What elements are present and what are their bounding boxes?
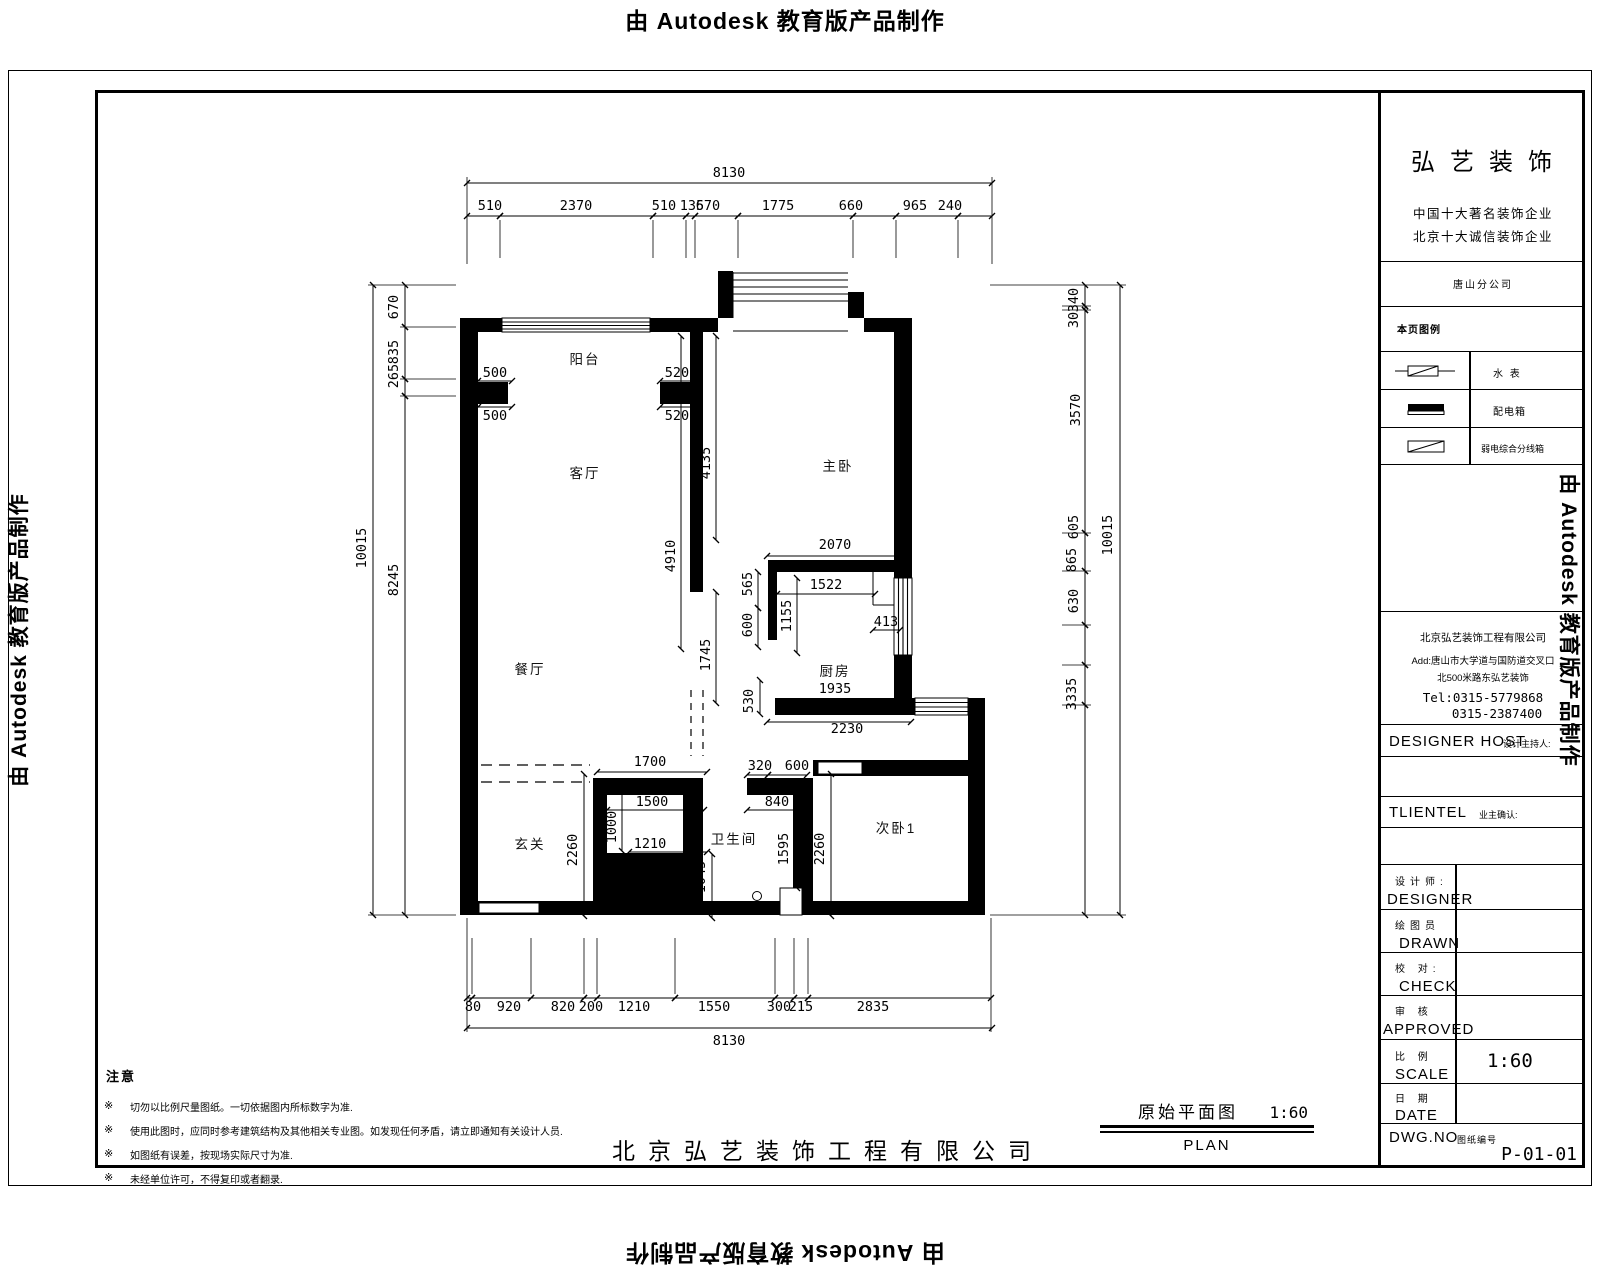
company-address: Add:唐山市大学道与国防道交叉口: [1381, 653, 1585, 667]
dim-label: 1775: [762, 198, 795, 214]
company-slogan: 中国十大著名装饰企业: [1381, 203, 1585, 222]
legend-divider: [1469, 352, 1471, 465]
dim-label: 265: [386, 364, 402, 388]
footer-company: 北京弘艺装饰工程有限公司: [612, 1132, 1044, 1166]
dim-label: 965: [903, 198, 927, 214]
dim-label: 240: [938, 198, 962, 214]
dim-label: 30: [1066, 312, 1082, 328]
dim-label: 413: [874, 614, 898, 630]
dim-label: 670: [696, 198, 720, 214]
dwg-no-row: DWG.NO 图纸编号 P-01-01: [1381, 1124, 1585, 1165]
dim-label: 630: [1066, 589, 1082, 613]
empty-cell: [1381, 757, 1585, 797]
legend-row: 水 表: [1381, 352, 1585, 390]
branch-cell: 唐山分公司: [1381, 262, 1585, 307]
room-label-balcony: 阳台: [570, 352, 601, 367]
room-label-bedroom2: 次卧1: [876, 821, 917, 836]
clientele-row: TLIENTEL 业主确认:: [1381, 797, 1585, 828]
dim-label: 1595: [776, 833, 792, 866]
drawing-title: 原始平面图 1:60 PLAN: [1100, 1098, 1314, 1154]
drawing-sheet: 由 Autodesk 教育版产品制作 由 Autodesk 教育版产品制作 由 …: [0, 0, 1600, 1280]
room-label-master: 主卧: [823, 459, 854, 474]
drawn-row: 绘图员 DRAWN: [1381, 910, 1585, 953]
pipe-shaft: [607, 853, 683, 915]
legend-title-cell: 本页图例: [1381, 307, 1585, 352]
dim-label: 600: [740, 613, 756, 637]
note-text: 使用此图时，应同时参考建筑结构及其他相关专业图。如发现任何矛盾，请立即通知有关设…: [130, 1123, 563, 1138]
dim-label: 3335: [1064, 678, 1080, 711]
room-label-kitchen: 厨房: [820, 664, 851, 679]
dim-label: 1210: [618, 999, 651, 1015]
dim-label: 340: [1066, 288, 1082, 312]
row-label-en: DRAWN: [1399, 935, 1585, 952]
scale-row: 比 例 SCALE 1:60: [1381, 1040, 1585, 1084]
notes-block: 注意 ※ 切勿以比例尺量图纸。一切依据图内所标数字为准. ※ 使用此图时，应同时…: [104, 1066, 584, 1195]
clientele-en: TLIENTEL: [1389, 804, 1467, 821]
company-address: 北500米路东弘艺装饰: [1381, 670, 1585, 684]
note-text: 未经单位许可，不得复印或者翻录.: [130, 1171, 283, 1186]
dim-label: 1700: [634, 754, 667, 770]
company-name: 北京弘艺装饰工程有限公司: [1381, 630, 1585, 645]
dim-label: 510: [478, 198, 502, 214]
room-label-living: 客厅: [570, 465, 601, 481]
legend-label: 配电箱: [1493, 403, 1526, 418]
dim-label: 2835: [857, 999, 890, 1015]
dim-label: 820: [551, 999, 575, 1015]
dim-label: 1045: [693, 861, 709, 894]
legend-row: 配电箱: [1381, 390, 1585, 428]
dim-label: 8130: [713, 165, 746, 181]
legend-row: 弱电综合分线箱: [1381, 428, 1585, 465]
dim-label: 1745: [698, 639, 714, 672]
empty-cell: [1381, 465, 1585, 612]
weak-current-box-icon: [1407, 440, 1447, 459]
dim-label: 565: [740, 572, 756, 596]
dim-label: 2370: [560, 198, 593, 214]
pier-left: [478, 382, 508, 404]
dim-label: 920: [497, 999, 521, 1015]
row-label-en: DESIGNER: [1387, 891, 1585, 908]
note-bullet: ※: [104, 1099, 130, 1114]
dwg-no-label: DWG.NO: [1389, 1129, 1458, 1146]
dim-label: 2260: [812, 833, 828, 866]
designer-host-zh: 设计主持人:: [1503, 737, 1551, 750]
row-label-zh: 校 对:: [1395, 960, 1585, 975]
dim-label: 215: [789, 999, 813, 1015]
clientele-zh: 业主确认:: [1479, 808, 1518, 821]
company-tel: Tel:0315-5779868: [1381, 690, 1585, 705]
note-item: ※ 使用此图时，应同时参考建筑结构及其他相关专业图。如发现任何矛盾，请立即通知有…: [104, 1123, 584, 1138]
dim-label: 300: [767, 999, 791, 1015]
dim-label: 500: [483, 408, 507, 424]
dim-label: 10015: [354, 528, 370, 569]
pier-right: [660, 382, 690, 404]
designer-host-row: DESIGNER HOST 设计主持人:: [1381, 725, 1585, 757]
room-labels-group: 阳台 客厅 餐厅 主卧 厨房 玄关 卫生间 次卧1: [515, 352, 917, 852]
room-label-entry: 玄关: [515, 836, 546, 852]
dim-label: 1522: [810, 577, 843, 593]
title-underline: [1100, 1131, 1314, 1133]
dim-label: 320: [748, 758, 772, 774]
dim-label: 660: [839, 198, 863, 214]
door-opening: [818, 762, 862, 774]
dim-label: 2260: [565, 834, 581, 867]
row-label-en: APPROVED: [1383, 1021, 1585, 1038]
dim-label: 510: [652, 198, 676, 214]
row-label-en: DATE: [1395, 1107, 1585, 1124]
dim-label: 865: [1064, 548, 1080, 572]
dim-label: 10015: [1100, 515, 1116, 556]
notes-title: 注意: [106, 1066, 584, 1085]
note-text: 切勿以比例尺量图纸。一切依据图内所标数字为准.: [130, 1099, 353, 1114]
floor-drain: [753, 892, 762, 901]
company-tel: 0315-2387400: [1409, 706, 1585, 721]
drawing-scale: 1:60: [1269, 1103, 1308, 1122]
dim-label: 8130: [713, 1033, 746, 1049]
title-underline: [1100, 1125, 1314, 1128]
note-text: 如图纸有误差，按现场实际尺寸为准.: [130, 1147, 293, 1162]
company-slogan: 北京十大诚信装饰企业: [1381, 226, 1585, 245]
row-label-zh: 设计师:: [1395, 873, 1585, 888]
note-bullet: ※: [104, 1171, 130, 1186]
dim-label: 1000: [604, 811, 620, 844]
approved-row: 审 核 APPROVED: [1381, 996, 1585, 1040]
note-item: ※ 如图纸有误差，按现场实际尺寸为准.: [104, 1147, 584, 1162]
row-label-zh: 绘图员: [1395, 917, 1585, 932]
company-logo: 弘艺装饰: [1381, 142, 1585, 177]
dim-label: 200: [579, 999, 603, 1015]
distribution-box-icon: [1407, 403, 1447, 421]
legend-label: 弱电综合分线箱: [1481, 442, 1544, 455]
note-item: ※ 未经单位许可，不得复印或者翻录.: [104, 1171, 584, 1186]
company-info-cell: 北京弘艺装饰工程有限公司 Add:唐山市大学道与国防道交叉口 北500米路东弘艺…: [1381, 612, 1585, 725]
rows-divider: [1455, 865, 1457, 1124]
dim-label: 1155: [779, 600, 795, 633]
note-bullet: ※: [104, 1123, 130, 1138]
title-block: 弘艺装饰 中国十大著名装饰企业 北京十大诚信装饰企业 唐山分公司 本页图例 水 …: [1378, 90, 1585, 1165]
check-row: 校 对: CHECK: [1381, 953, 1585, 996]
dim-label: 4135: [698, 447, 714, 480]
basin-fixture: [780, 888, 802, 915]
row-label-zh: 审 核: [1395, 1003, 1585, 1018]
legend-label: 水 表: [1493, 365, 1522, 380]
dim-label: 4910: [663, 540, 679, 573]
title-block-logo-cell: 弘艺装饰 中国十大著名装饰企业 北京十大诚信装饰企业: [1381, 90, 1585, 262]
legend-title: 本页图例: [1397, 321, 1441, 336]
dim-label: 2230: [831, 721, 864, 737]
branch-name: 唐山分公司: [1453, 276, 1513, 291]
dim-label: 1210: [634, 836, 667, 852]
dim-label: 1935: [819, 681, 852, 697]
door-opening: [479, 903, 539, 913]
note-item: ※ 切勿以比例尺量图纸。一切依据图内所标数字为准.: [104, 1099, 584, 1114]
drawing-title-en: PLAN: [1100, 1137, 1314, 1154]
room-label-bath: 卫生间: [711, 832, 758, 847]
scale-value: 1:60: [1487, 1050, 1533, 1072]
empty-cell: [1381, 828, 1585, 865]
note-bullet: ※: [104, 1147, 130, 1162]
row-label-zh: 日 期: [1395, 1090, 1585, 1105]
dim-label: 520: [665, 408, 689, 424]
dwg-no-value: P-01-01: [1501, 1144, 1577, 1165]
water-meter-icon: [1395, 364, 1455, 383]
dim-label: 8245: [386, 564, 402, 597]
dim-label: 835: [386, 340, 402, 364]
dim-label: 3570: [1068, 394, 1084, 427]
room-label-dining: 餐厅: [515, 662, 546, 677]
dim-label: 670: [386, 295, 402, 319]
designer-row: 设计师: DESIGNER: [1381, 865, 1585, 910]
dim-label: 840: [765, 794, 789, 810]
dim-label: 500: [483, 365, 507, 381]
dim-label: 1500: [636, 794, 669, 810]
bay-window: [733, 272, 850, 331]
row-label-en: CHECK: [1399, 978, 1585, 995]
dim-label: 605: [1066, 515, 1082, 539]
dim-label: 80: [465, 999, 481, 1015]
dim-label: 1550: [698, 999, 731, 1015]
dim-label: 530: [741, 689, 757, 713]
dwg-no-label-zh: 图纸编号: [1457, 1133, 1497, 1146]
dim-label: 520: [665, 365, 689, 381]
dim-label: 600: [785, 758, 809, 774]
drawing-title-zh: 原始平面图: [1138, 1098, 1238, 1123]
dim-label: 2070: [819, 537, 852, 553]
date-row: 日 期 DATE: [1381, 1084, 1585, 1124]
